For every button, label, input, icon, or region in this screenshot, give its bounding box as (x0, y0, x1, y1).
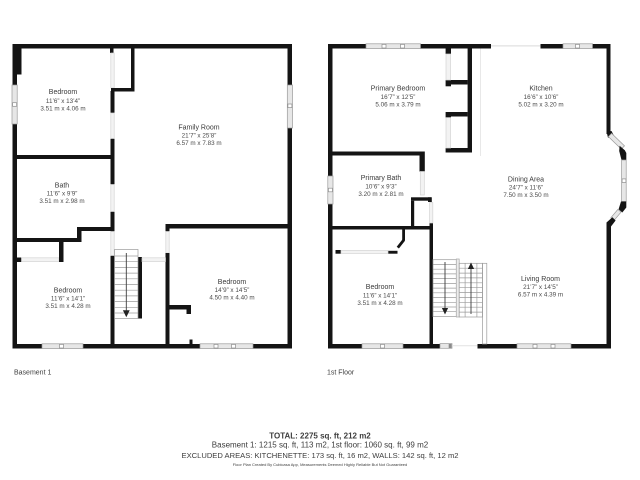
svg-text:21’7” x 25’8”: 21’7” x 25’8” (182, 133, 217, 140)
svg-text:Dining Area: Dining Area (508, 176, 544, 183)
svg-text:11’6” x 14’1”: 11’6” x 14’1” (363, 293, 397, 300)
svg-text:16’6” x 10’6”: 16’6” x 10’6” (524, 94, 559, 101)
svg-text:Bath: Bath (55, 182, 70, 189)
svg-text:11’6” x 14’1”: 11’6” x 14’1” (51, 296, 85, 303)
svg-text:7.50 m x 3.50 m: 7.50 m x 3.50 m (503, 192, 548, 199)
svg-text:3.51 m x 4.28 m: 3.51 m x 4.28 m (45, 303, 90, 310)
svg-text:11’6” x 9’9”: 11’6” x 9’9” (47, 191, 78, 198)
svg-text:1st Floor: 1st Floor (327, 370, 355, 377)
svg-text:Family Room: Family Room (178, 124, 219, 131)
svg-text:24’7” x 11’6”: 24’7” x 11’6” (509, 185, 543, 192)
svg-text:Bedroom: Bedroom (49, 89, 78, 96)
svg-text:21’7” x 14’5”: 21’7” x 14’5” (523, 284, 558, 291)
svg-text:3.51 m x 2.98 m: 3.51 m x 2.98 m (39, 198, 84, 205)
svg-text:6.57 m x 4.39 m: 6.57 m x 4.39 m (518, 292, 563, 299)
svg-text:TOTAL: 2275 sq. ft, 212 m2: TOTAL: 2275 sq. ft, 212 m2 (269, 431, 371, 440)
svg-text:Bedroom: Bedroom (54, 287, 83, 294)
svg-text:14’9” x 14’5”: 14’9” x 14’5” (215, 287, 250, 294)
svg-text:10’6” x 9’3”: 10’6” x 9’3” (365, 184, 396, 191)
svg-text:5.02 m x 3.20 m: 5.02 m x 3.20 m (518, 102, 563, 109)
svg-text:Kitchen: Kitchen (529, 85, 552, 92)
svg-text:Living Room: Living Room (521, 276, 560, 283)
svg-text:Basement 1: Basement 1 (14, 370, 51, 377)
svg-text:16’7” x 12’5”: 16’7” x 12’5” (381, 94, 416, 101)
svg-text:Bedroom: Bedroom (218, 279, 247, 286)
svg-text:5.06 m x 3.79 m: 5.06 m x 3.79 m (375, 102, 420, 109)
svg-text:3.20 m x 2.81 m: 3.20 m x 2.81 m (358, 191, 403, 198)
svg-text:11’6” x 13’4”: 11’6” x 13’4” (46, 98, 80, 105)
svg-text:4.50 m x 4.40 m: 4.50 m x 4.40 m (209, 295, 254, 302)
svg-text:Bedroom: Bedroom (366, 284, 395, 291)
svg-text:Floor Plan Created By Cubicasa: Floor Plan Created By Cubicasa App, Meas… (233, 462, 408, 467)
svg-text:6.57 m x 7.83 m: 6.57 m x 7.83 m (176, 140, 221, 147)
svg-text:3.51 m x 4.28 m: 3.51 m x 4.28 m (357, 300, 402, 307)
svg-text:3.51 m x 4.06 m: 3.51 m x 4.06 m (40, 106, 85, 113)
svg-text:Primary Bedroom: Primary Bedroom (371, 85, 426, 92)
svg-text:Basement 1: 1215 sq. ft, 113 m: Basement 1: 1215 sq. ft, 113 m2, 1st flo… (212, 441, 429, 450)
svg-text:EXCLUDED AREAS: KITCHENETTE: 1: EXCLUDED AREAS: KITCHENETTE: 173 sq. ft,… (182, 451, 459, 460)
svg-text:Primary Bath: Primary Bath (361, 175, 402, 182)
